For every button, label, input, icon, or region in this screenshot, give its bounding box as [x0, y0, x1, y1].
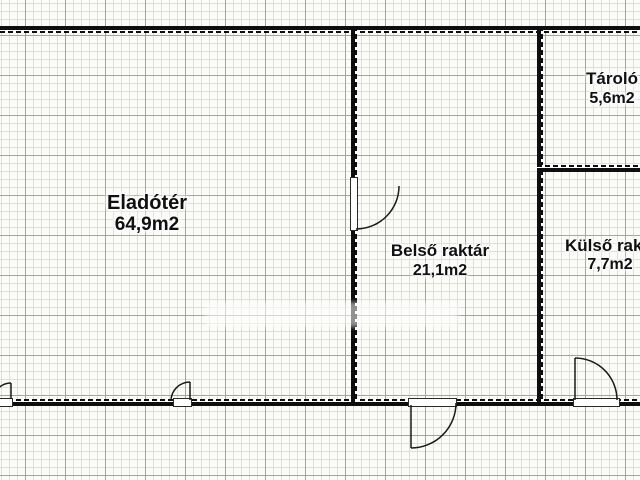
room-area-tarolo: 5,6m2	[552, 89, 640, 109]
room-name-belso-raktar: Belső raktár	[360, 241, 520, 261]
room-label-eladoter: Eladótér 64,9m2	[67, 192, 227, 236]
door-swing-arcs	[0, 0, 640, 480]
door-opening-eladoter	[173, 398, 192, 407]
room-name-kulso-raktar: Külső raktár	[565, 236, 640, 256]
watermark	[206, 302, 458, 327]
wall-top	[0, 26, 640, 33]
room-area-kulso-raktar: 7,7m2	[565, 255, 640, 275]
room-name-eladoter: Eladótér	[67, 192, 227, 214]
door-arc-kulso	[575, 358, 617, 400]
wall-right-vertical	[537, 26, 543, 406]
door-opening-belso-bottom	[408, 398, 457, 407]
room-area-eladoter: 64,9m2	[67, 214, 227, 236]
door-opening-belso-wall	[350, 177, 358, 231]
wall-tarolo-bottom	[537, 165, 640, 172]
floor-plan: Eladótér 64,9m2 Belső raktár 21,1m2 Táro…	[0, 0, 640, 480]
room-name-tarolo: Tároló	[552, 69, 640, 89]
door-opening-kulso-bottom	[573, 398, 620, 407]
door-arc-belso-bottom	[411, 403, 456, 448]
door-arc-belso-wall	[356, 186, 399, 229]
room-area-belso-raktar: 21,1m2	[360, 261, 520, 281]
room-label-tarolo: Tároló 5,6m2	[552, 69, 640, 109]
room-label-belso-raktar: Belső raktár 21,1m2	[360, 241, 520, 281]
door-opening-left-edge	[0, 398, 13, 407]
wall-bottom	[0, 399, 640, 406]
